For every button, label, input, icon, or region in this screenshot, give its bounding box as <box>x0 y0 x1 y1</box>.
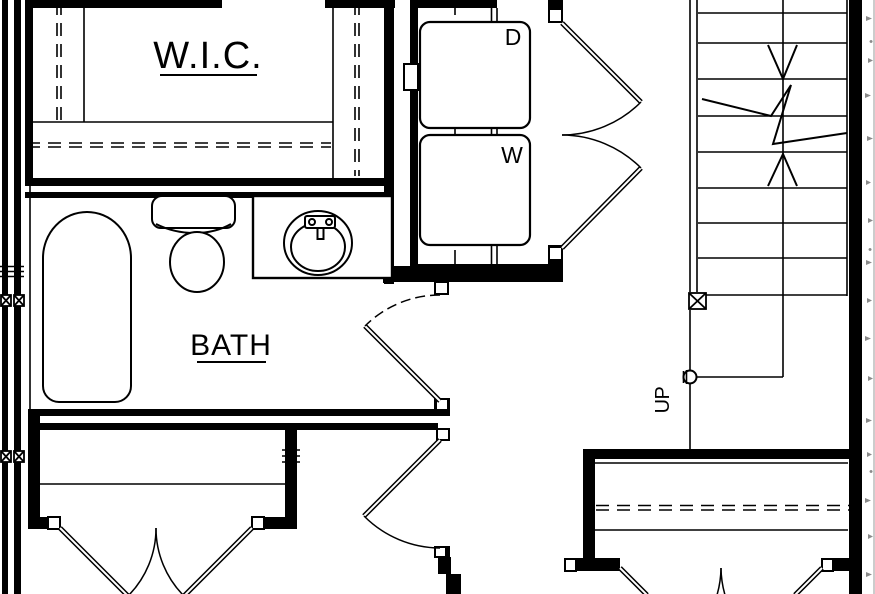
toilet-bowl <box>170 232 224 292</box>
up-direction-label: UP <box>652 386 674 413</box>
faucet-spout <box>318 228 324 239</box>
floor-plan: W.I.C. BATH D W UP <box>0 0 875 594</box>
closet2-door-jamb-left <box>565 559 576 571</box>
wall-laundry-jamb-top <box>548 0 563 9</box>
wall-closet2-west <box>583 449 595 560</box>
floor-plan-drawing: W.I.C. BATH D W UP <box>0 0 875 594</box>
hall-door <box>364 440 440 548</box>
closet1-door-jamb-left <box>48 517 60 529</box>
bath-door <box>365 295 440 401</box>
wall-closet1-front-left <box>28 517 48 529</box>
dryer-label: D <box>505 24 522 50</box>
wall-middoor-step1 <box>438 557 451 574</box>
closet1-door-swing-left <box>128 528 156 594</box>
laundry-double-doors <box>562 23 641 248</box>
wall-wic-west <box>25 0 33 186</box>
washer-label: W <box>501 142 523 168</box>
faucet-handle-right <box>326 219 332 225</box>
wall-hall-south <box>385 266 563 282</box>
closet1-double-doors <box>60 528 252 594</box>
concrete-hatch <box>865 16 873 577</box>
bath-door-swing <box>365 295 440 326</box>
x-box <box>689 293 706 309</box>
stair-annotations <box>684 45 848 384</box>
x-box <box>14 295 24 306</box>
stair-break-line <box>702 85 847 144</box>
wall-closet2-front-left <box>575 558 620 571</box>
wall-wic-south <box>25 178 392 186</box>
x-box <box>14 451 24 462</box>
bath-room-label: BATH <box>190 329 272 362</box>
laundry-door-swing-bottom <box>562 135 641 168</box>
mid-door-jamb-top <box>437 429 449 440</box>
laundry-appliances <box>404 22 530 245</box>
bathtub <box>43 212 131 402</box>
toilet-tank <box>152 196 235 228</box>
wall-middoor-step2 <box>446 574 461 594</box>
wall-closet2-north <box>583 449 858 459</box>
faucet-handle-left <box>309 219 315 225</box>
wall-laundry-west <box>410 0 418 266</box>
laundry-door-jamb-top <box>549 9 562 22</box>
laundry-wall-fixture <box>404 64 418 90</box>
closet2-double-doors <box>620 568 822 594</box>
wic-room-label: W.I.C. <box>153 35 262 77</box>
closet1-door-jamb-right <box>252 517 264 529</box>
closet2-door-jamb-right <box>822 559 833 571</box>
wall-wic-north-a <box>25 0 222 8</box>
wall-bath-south <box>28 409 437 416</box>
laundry-door-swing-top <box>562 102 641 135</box>
bath-door-jamb-top <box>435 282 448 294</box>
wall-closet1-east <box>285 429 297 529</box>
laundry-door-jamb-bottom <box>549 247 562 260</box>
closet1-door-swing-right <box>156 528 184 594</box>
x-box <box>1 295 11 306</box>
newel-post <box>684 371 697 384</box>
x-box <box>1 451 11 462</box>
wall-closet1-north <box>28 423 438 430</box>
wall-closet1-west <box>28 416 40 529</box>
bath-fixtures <box>43 196 392 402</box>
closet2-door-swing-right <box>721 568 725 594</box>
wall-laundry-north <box>410 0 497 8</box>
hall-door-swing <box>364 516 440 548</box>
